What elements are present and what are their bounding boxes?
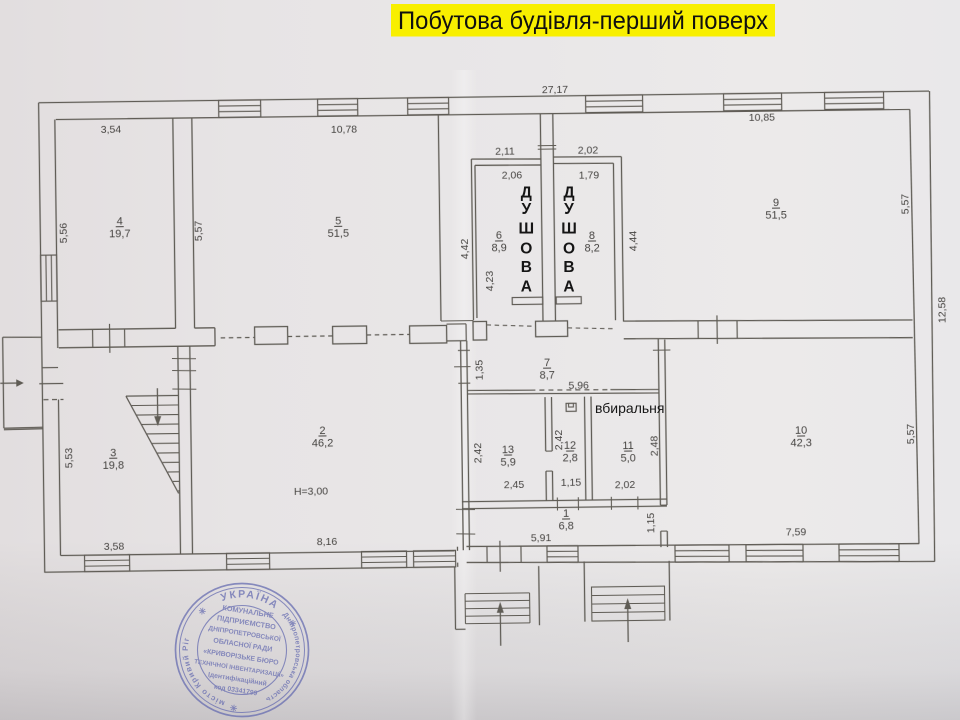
svg-text:1,79: 1,79: [579, 169, 600, 181]
svg-text:19,8: 19,8: [103, 460, 125, 472]
svg-text:4,44: 4,44: [627, 231, 639, 252]
svg-text:вбиральня: вбиральня: [595, 400, 664, 416]
svg-text:8: 8: [589, 230, 595, 242]
svg-text:2,48: 2,48: [648, 436, 660, 457]
svg-text:2,8: 2,8: [562, 452, 577, 464]
svg-text:27,17: 27,17: [542, 84, 569, 96]
svg-text:2,11: 2,11: [495, 146, 515, 158]
svg-text:У: У: [564, 201, 574, 218]
svg-text:46,2: 46,2: [312, 437, 334, 449]
svg-text:10: 10: [795, 425, 807, 437]
svg-text:В: В: [563, 259, 574, 276]
svg-text:H=3,00: H=3,00: [294, 486, 328, 498]
svg-text:7,59: 7,59: [786, 526, 807, 538]
svg-text:5,9: 5,9: [500, 456, 515, 468]
svg-text:В: В: [521, 259, 532, 276]
svg-text:Ш: Ш: [561, 221, 577, 238]
svg-text:10,85: 10,85: [749, 112, 776, 124]
svg-text:4: 4: [117, 216, 123, 228]
svg-text:Д: Д: [521, 185, 532, 202]
svg-text:3,54: 3,54: [101, 124, 122, 136]
svg-text:5,53: 5,53: [63, 448, 75, 469]
svg-text:Ш: Ш: [519, 221, 535, 238]
svg-text:5,96: 5,96: [568, 380, 589, 392]
svg-text:У: У: [521, 201, 531, 218]
svg-text:3: 3: [110, 447, 116, 459]
svg-text:2,02: 2,02: [615, 479, 636, 491]
svg-text:А: А: [521, 279, 532, 296]
svg-text:8,9: 8,9: [491, 242, 506, 254]
svg-text:6,8: 6,8: [558, 520, 573, 532]
svg-text:О: О: [563, 241, 575, 258]
svg-text:1,35: 1,35: [474, 360, 486, 381]
svg-text:9: 9: [773, 197, 779, 209]
svg-text:5,57: 5,57: [193, 221, 205, 242]
svg-text:4,23: 4,23: [484, 271, 496, 292]
svg-text:11: 11: [622, 440, 634, 452]
svg-text:6: 6: [496, 230, 502, 242]
svg-text:2,02: 2,02: [578, 144, 599, 156]
svg-text:Д: Д: [563, 185, 574, 202]
svg-text:3,58: 3,58: [104, 541, 125, 553]
svg-text:О: О: [520, 241, 532, 258]
svg-text:10,78: 10,78: [331, 124, 358, 136]
svg-text:2,45: 2,45: [504, 479, 525, 491]
svg-text:7: 7: [544, 357, 550, 369]
svg-text:2,06: 2,06: [502, 169, 523, 181]
svg-text:12,58: 12,58: [936, 297, 948, 324]
svg-text:8,2: 8,2: [584, 242, 599, 254]
svg-text:19,7: 19,7: [109, 228, 131, 240]
svg-text:5,57: 5,57: [905, 424, 917, 445]
svg-text:1,15: 1,15: [561, 477, 582, 489]
svg-text:5,57: 5,57: [899, 194, 911, 215]
svg-text:12: 12: [564, 440, 576, 452]
svg-text:5: 5: [335, 215, 341, 227]
svg-text:5,0: 5,0: [620, 452, 635, 464]
svg-text:42,3: 42,3: [790, 437, 812, 449]
svg-text:1: 1: [563, 508, 569, 520]
svg-text:2: 2: [319, 425, 325, 437]
svg-text:51,5: 51,5: [765, 209, 787, 221]
svg-text:5,56: 5,56: [58, 223, 70, 244]
svg-text:8,16: 8,16: [317, 536, 338, 548]
svg-text:Побутова будівля-перший поверх: Побутова будівля-перший поверх: [398, 7, 768, 35]
svg-text:1,15: 1,15: [645, 513, 657, 534]
svg-text:5,91: 5,91: [531, 532, 552, 544]
svg-text:4,42: 4,42: [459, 239, 471, 260]
svg-text:51,5: 51,5: [328, 228, 350, 240]
svg-text:8,7: 8,7: [539, 370, 554, 382]
svg-text:А: А: [563, 279, 574, 296]
svg-text:2,42: 2,42: [472, 443, 484, 464]
svg-text:13: 13: [502, 444, 514, 456]
